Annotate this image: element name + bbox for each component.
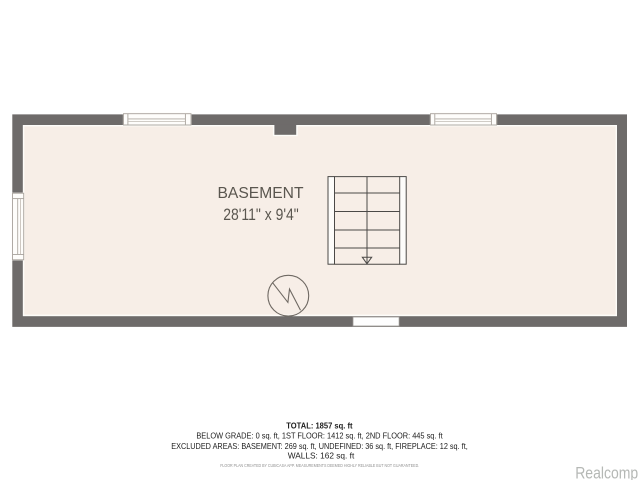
- svg-text:TOTAL: 1857 sq. ft: TOTAL: 1857 sq. ft: [286, 421, 352, 431]
- svg-text:BASEMENT: BASEMENT: [218, 185, 304, 202]
- svg-text:Realcomp: Realcomp: [575, 464, 638, 480]
- svg-text:WALLS: 162 sq. ft: WALLS: 162 sq. ft: [288, 450, 355, 460]
- svg-text:EXCLUDED AREAS: BASEMENT: 269: EXCLUDED AREAS: BASEMENT: 269 sq. ft, UN…: [171, 441, 468, 451]
- svg-text:BELOW GRADE: 0 sq. ft, 1ST FLO: BELOW GRADE: 0 sq. ft, 1ST FLOOR: 1412 s…: [196, 431, 443, 441]
- svg-text:FLOOR PLAN CREATED BY CUBICASA: FLOOR PLAN CREATED BY CUBICASA APP. MEAS…: [220, 463, 419, 468]
- svg-text:28'11" x 9'4": 28'11" x 9'4": [223, 205, 299, 224]
